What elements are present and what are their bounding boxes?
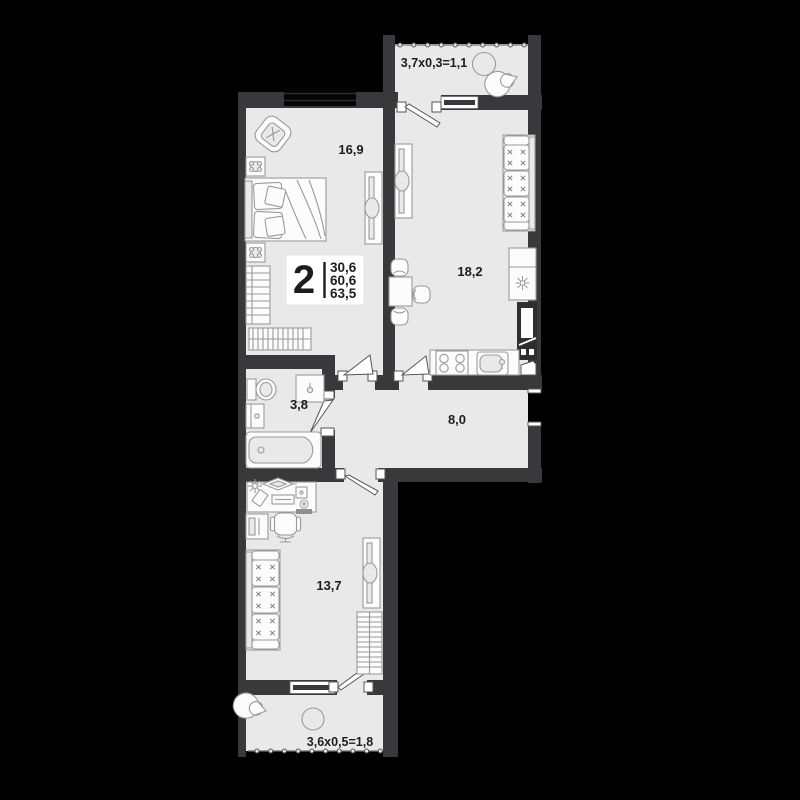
hallway-area-label: 8,0: [448, 412, 466, 427]
shelving-icon: [357, 612, 382, 674]
floor-plan: 3,7х0,3=1,1 16,9 18,2 3,8 8,0 13,7 3,6х0…: [0, 0, 800, 800]
dresser-icon: [246, 266, 270, 324]
balcony-bottom-label: 3,6х0,5=1,8: [307, 735, 373, 749]
vent-icon: [516, 276, 530, 290]
desk-drawer-icon: [296, 509, 312, 514]
wall-shelf-icon: [246, 514, 268, 539]
sink-icon: [477, 352, 508, 375]
wardrobe-icon: [365, 172, 382, 244]
floor-plan-canvas: 3,7х0,3=1,1 16,9 18,2 3,8 8,0 13,7 3,6х0…: [0, 0, 800, 800]
badge-total-area: 63,5: [330, 286, 357, 301]
sofa-icon: [503, 135, 535, 231]
round-table-icon: [302, 708, 324, 730]
wardrobe-icon: [363, 538, 380, 608]
bedroom-window-icon: [284, 88, 356, 106]
room-area-label: 13,7: [316, 578, 341, 593]
nightstand-icon: [246, 157, 265, 176]
round-table-icon: [473, 53, 496, 76]
kitchen-area-label: 18,2: [457, 264, 482, 279]
bedroom-area-label: 16,9: [338, 142, 363, 157]
sofa-icon: [246, 550, 280, 650]
entrance-opening-icon: [528, 389, 541, 426]
nightstand-icon: [246, 243, 265, 262]
washing-machine-icon: [246, 404, 264, 428]
toilet-icon: [247, 379, 276, 400]
apartment-badge: 2 30,6 60,6 63,5: [286, 255, 364, 305]
bathtub-icon: [246, 432, 321, 468]
badge-room-count: 2: [293, 258, 315, 302]
cabinet-icon: [509, 248, 536, 300]
desk-icon: [247, 478, 316, 514]
wardrobe-icon: [395, 144, 412, 218]
balcony-top-label: 3,7х0,3=1,1: [401, 56, 467, 70]
stove-icon: [436, 351, 468, 375]
tv-stand-icon: [249, 328, 311, 350]
bathroom-area-label: 3,8: [290, 397, 308, 412]
kitchen-balcony-window-icon: [441, 97, 478, 109]
double-bed-icon: [245, 178, 326, 241]
room-balcony-window-icon: [290, 682, 335, 694]
